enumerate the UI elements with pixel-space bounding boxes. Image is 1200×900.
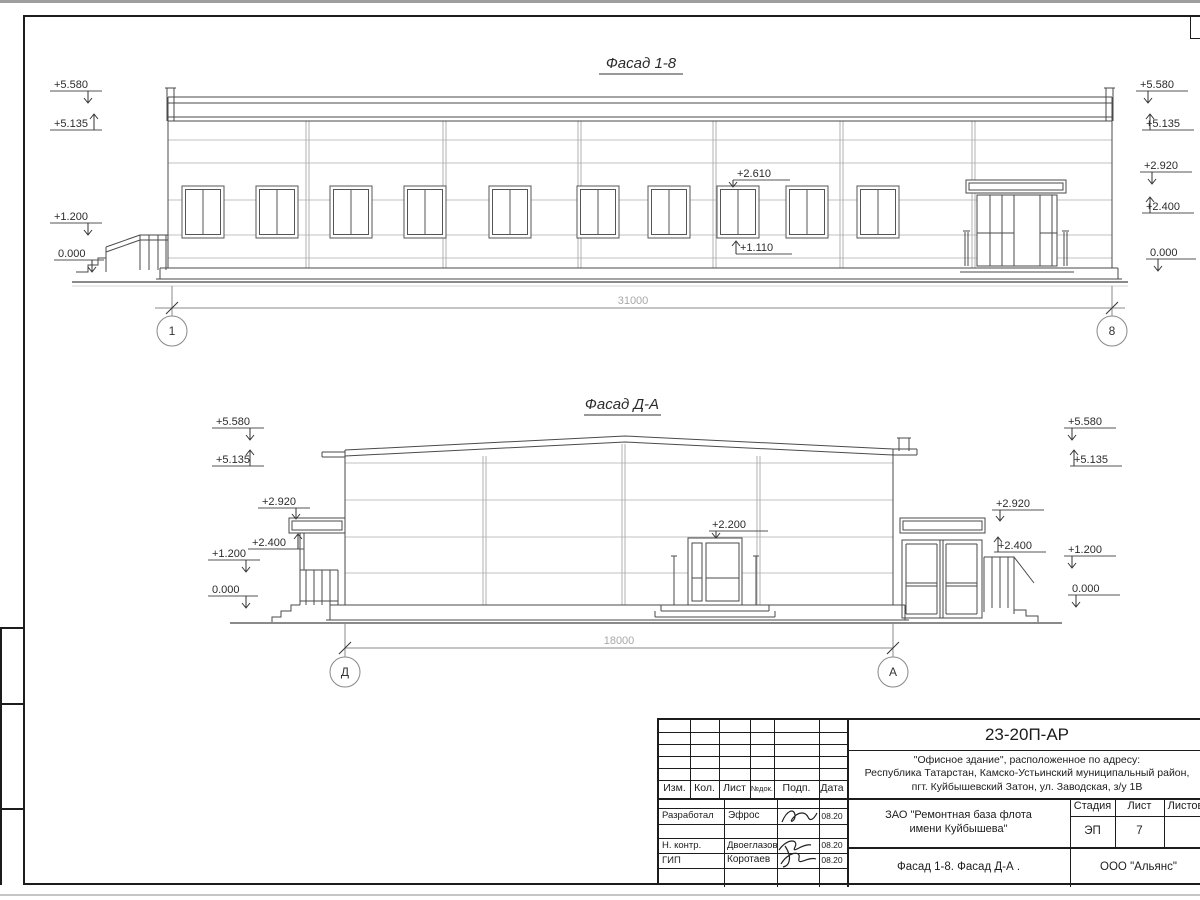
elevation-marks-right: +5.580 +5.135 +2.920 +2.400 0.000 [1136,79,1196,271]
title-block-line [659,768,847,769]
siding-lines [345,463,893,573]
elevation-mark: +1.110 [740,242,773,254]
row-role: Н. контр. [662,838,723,853]
elevation-mark: +2.920 [1144,160,1178,172]
document-number: 23-20П-АР [847,720,1200,750]
project-address-line: "Офисное здание", расположенное по адрес… [914,754,1140,767]
elevation-mark: +1.200 [212,548,246,560]
elevation-drawings: +5.580 +5.135 +1.200 0.000 +5.580 +5.135… [0,0,1200,710]
row-name: Эфрос [728,808,776,824]
drawing-title: Фасад 1-8. Фасад Д-А . [847,847,1070,887]
elevation-mark: +2.400 [1146,201,1180,213]
entrance-door [960,180,1074,272]
elevation-marks-left: +5.580 +5.135 +2.920 +2.400 +1.200 0.000 [208,416,310,608]
row-date: 08.20 [819,808,845,824]
door-level-mark: +2.200 [709,519,768,538]
dimension-value: 18000 [604,635,635,647]
left-stairs [76,235,168,272]
project-address-line: пгт. Куйбышевский Затон, ул. Заводская, … [912,781,1143,794]
sheet-value: 7 [1115,816,1164,847]
elevation-mark: +5.135 [1074,454,1108,466]
elevation-mark: 0.000 [1072,583,1100,595]
row-name: Коротаев [727,853,777,868]
stage-label: Стадия [1070,798,1115,816]
row-date: 08.20 [819,838,845,853]
axis-markers: 1 8 [157,316,1127,346]
row-role: ГИП [662,853,723,868]
elevation-mark: +5.135 [54,118,88,130]
signature-kontrol-gip [775,836,819,870]
dimension-line: 31000 [155,286,1125,317]
left-porch [272,518,345,623]
wall-outline [322,436,917,620]
binding-divider [0,808,23,810]
company-name: ООО "Альянс" [1070,847,1200,887]
row-name: Двоеглазов [727,838,777,853]
col-podp: Подп. [774,780,819,798]
client-name-line: ЗАО "Ремонтная база флота [885,809,1032,823]
col-data: Дата [819,780,845,798]
elevation-marks-left: +5.580 +5.135 +1.200 0.000 [50,79,104,272]
client-name-line: имени Куйбышева" [909,823,1007,837]
elevation-mark: 0.000 [1150,247,1178,259]
stage-value: ЭП [1070,816,1115,847]
elevation-mark: +5.580 [216,416,250,428]
project-address: "Офисное здание", расположенное по адрес… [847,750,1200,798]
elevation-mark: +2.200 [712,519,746,531]
axis-markers: Д А [330,657,908,687]
elevation-marks-right: +5.580 +5.135 +2.920 +2.400 +1.200 0.000 [992,416,1122,607]
dimension-value: 31000 [618,295,649,307]
elevation-mark: +2.400 [252,537,286,549]
row-date: 08.20 [819,853,845,868]
elevation-mark: +2.400 [998,540,1032,552]
axis-label: Д [341,665,349,679]
elevation-mark: +5.135 [216,454,250,466]
sheets-label: Листов [1164,798,1200,816]
col-izm: Изм. [659,780,690,798]
elevation-mark: +5.580 [1140,79,1174,91]
elevation-mark: +5.580 [1068,416,1102,428]
axis-label: 8 [1109,324,1116,338]
windows-row [182,186,899,238]
client-name: ЗАО "Ремонтная база флота имени Куйбышев… [847,798,1070,847]
axis-label: А [889,665,897,679]
signature-razrabotal [779,807,819,827]
project-address-line: Республика Татарстан, Камско-Устьинский … [865,767,1190,780]
facade-title: Фасад 1-8 [606,55,677,72]
title-block-line [659,756,847,757]
page-edge-bottom [0,894,1200,896]
facade-d-a-drawing: +5.580 +5.135 +2.920 +2.400 +1.200 0.000… [208,396,1122,687]
row-role: Разработал [662,808,723,824]
elevation-mark: +5.135 [1146,118,1180,130]
col-kol: Кол. [690,780,719,798]
axis-label: 1 [169,324,176,338]
elevation-mark: +1.200 [54,211,88,223]
siding-lines [168,140,1112,258]
title-block-line [659,744,847,745]
dimension-line: 18000 [339,624,899,658]
right-porch [900,518,1038,622]
col-list: Лист [719,780,750,798]
title-block: 23-20П-АР "Офисное здание", расположенно… [657,718,1200,885]
elevation-mark: +1.200 [1068,544,1102,556]
elevation-mark: 0.000 [58,248,86,260]
title-block-line [724,798,725,887]
elevation-mark: +5.580 [54,79,88,91]
sheet-label: Лист [1115,798,1164,816]
col-ndok: №док. [750,780,774,798]
facade-1-8-drawing: +5.580 +5.135 +1.200 0.000 +5.580 +5.135… [50,55,1196,346]
elevation-mark: +2.610 [737,168,771,180]
elevation-mark: 0.000 [212,584,240,596]
title-block-line [659,732,847,733]
elevation-mark: +2.920 [262,496,296,508]
drawing-sheet: { "facade_top": { "title": "Фасад 1-8", … [0,0,1200,900]
facade-title: Фасад Д-А [585,396,659,413]
elevation-mark: +2.920 [996,498,1030,510]
